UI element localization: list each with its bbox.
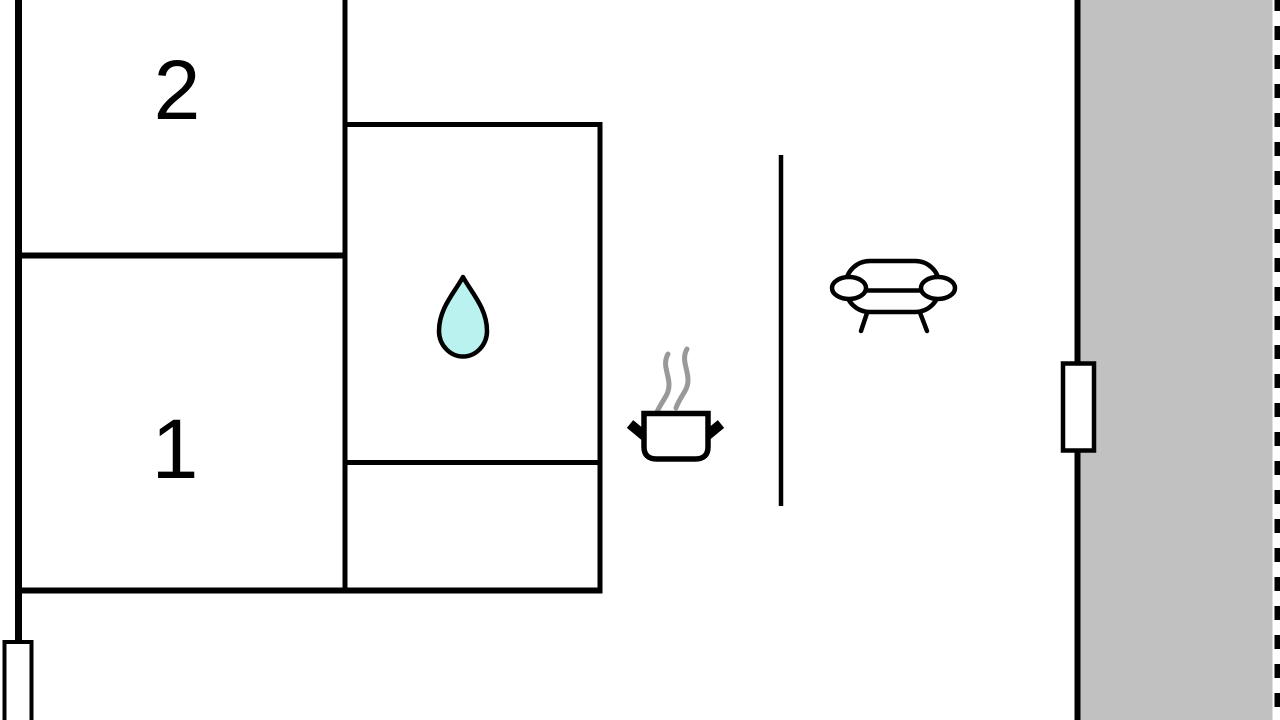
sofa-icon (832, 261, 955, 331)
sofa-right-armrest (921, 277, 955, 299)
floor-plan: 2 1 (0, 0, 1280, 720)
steam-icon (657, 349, 688, 412)
terrace-area (1080, 0, 1273, 720)
room-label-1: 1 (110, 391, 240, 507)
room-label-2: 2 (112, 32, 242, 148)
sofa-left-armrest (832, 277, 866, 299)
window-icon (5, 642, 32, 720)
pot-body (644, 414, 708, 460)
water-drop-icon (439, 277, 487, 357)
window-icon (1063, 364, 1094, 451)
cooking-pot-icon (630, 414, 721, 460)
